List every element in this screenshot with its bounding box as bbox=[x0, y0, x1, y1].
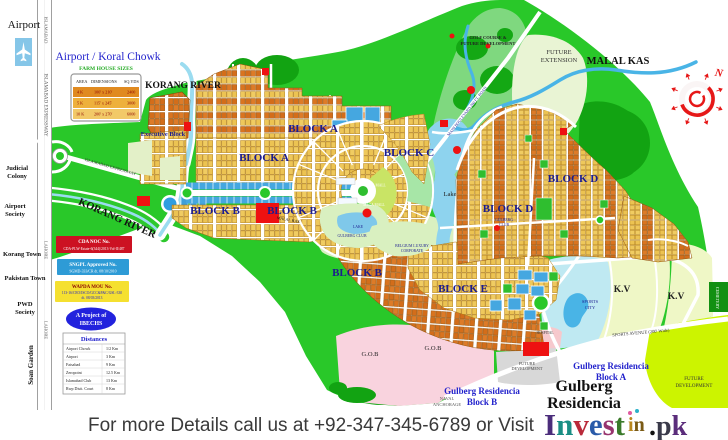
svg-text:Judicial: Judicial bbox=[6, 165, 28, 172]
svg-text:IBECHS: IBECHS bbox=[80, 321, 103, 327]
svg-text:SNGPL Approved No.: SNGPL Approved No. bbox=[69, 263, 117, 268]
svg-text:GOLF COURSE &: GOLF COURSE & bbox=[469, 35, 507, 40]
svg-text:CDA NOC No.: CDA NOC No. bbox=[78, 240, 110, 245]
svg-text:FUTURE: FUTURE bbox=[546, 49, 571, 56]
svg-text:BLOCK B: BLOCK B bbox=[267, 205, 317, 217]
svg-text:Gulberg Residencia: Gulberg Residencia bbox=[444, 386, 520, 396]
svg-text:K.V: K.V bbox=[668, 292, 685, 302]
svg-text:113-16/CEO/ISCO/GCC&P&C/GSL-33: 113-16/CEO/ISCO/GCC&P&C/GSL-330 bbox=[62, 291, 122, 295]
svg-text:Zeropoint: Zeropoint bbox=[66, 370, 83, 375]
svg-text:9 Km: 9 Km bbox=[106, 362, 116, 367]
svg-text:G.O.B: G.O.B bbox=[425, 345, 443, 352]
svg-text:Airport: Airport bbox=[66, 354, 79, 359]
svg-text:.pk: .pk bbox=[649, 411, 688, 440]
svg-text:BLOCK B: BLOCK B bbox=[332, 267, 382, 279]
svg-text:BLOCK D: BLOCK D bbox=[548, 173, 598, 185]
svg-text:LAHORE: LAHORE bbox=[44, 321, 49, 339]
svg-text:MEGA MALL: MEGA MALL bbox=[363, 203, 384, 207]
svg-text:10 K: 10 K bbox=[76, 112, 84, 117]
svg-text:FUTURE DEVELOPMENT: FUTURE DEVELOPMENT bbox=[461, 41, 516, 46]
svg-text:G.O.B: G.O.B bbox=[362, 351, 380, 358]
svg-text:FUTURE: FUTURE bbox=[684, 377, 703, 382]
svg-text:NAVAL: NAVAL bbox=[440, 396, 455, 401]
svg-text:in: in bbox=[628, 414, 645, 436]
svg-text:Invest: Invest bbox=[544, 407, 626, 440]
svg-text:Soan Garden: Soan Garden bbox=[27, 345, 35, 385]
svg-text:Block B: Block B bbox=[467, 397, 497, 407]
svg-text:CITY: CITY bbox=[585, 305, 596, 310]
svg-text:200' x 270': 200' x 270' bbox=[94, 112, 113, 117]
svg-text:BLOCK A: BLOCK A bbox=[239, 152, 289, 164]
svg-text:PWD: PWD bbox=[17, 301, 32, 308]
svg-text:Airport Chowk: Airport Chowk bbox=[66, 346, 90, 351]
svg-text:ANCHORAGE: ANCHORAGE bbox=[433, 402, 462, 407]
svg-text:Lake: Lake bbox=[444, 191, 457, 198]
svg-text:Rwp Distt. Court: Rwp Distt. Court bbox=[66, 386, 94, 391]
svg-text:8 Km: 8 Km bbox=[106, 386, 116, 391]
svg-text:ISLAMABAD EXPRESSWAY: ISLAMABAD EXPRESSWAY bbox=[43, 73, 48, 137]
svg-text:CLUB: CLUB bbox=[499, 223, 510, 227]
svg-text:BLOCK B: BLOCK B bbox=[190, 205, 240, 217]
svg-text:FARM HOUSE SIZES: FARM HOUSE SIZES bbox=[79, 66, 133, 72]
svg-text:K.V: K.V bbox=[614, 285, 631, 295]
svg-text:6000: 6000 bbox=[127, 112, 135, 117]
svg-text:CEMETERY: CEMETERY bbox=[715, 287, 720, 309]
svg-text:ISLAMABAD: ISLAMABAD bbox=[44, 17, 49, 45]
svg-text:KORANG RIVER: KORANG RIVER bbox=[145, 81, 221, 91]
svg-text:Korang Town: Korang Town bbox=[3, 251, 41, 258]
svg-text:BLOCK E: BLOCK E bbox=[438, 283, 488, 295]
svg-text:LAHORE: LAHORE bbox=[44, 241, 49, 259]
svg-text:BELGIUM LUXURY: BELGIUM LUXURY bbox=[395, 244, 429, 248]
svg-text:CDA-PLW-Estate-6(344)/2013-Vol: CDA-PLW-Estate-6(344)/2013-Vol-II/487 bbox=[64, 247, 125, 251]
svg-text:4 K: 4 K bbox=[77, 90, 83, 95]
svg-text:1/2 Km: 1/2 Km bbox=[106, 346, 119, 351]
svg-text:AREA: AREA bbox=[76, 79, 87, 84]
svg-text:Executive Block: Executive Block bbox=[141, 131, 186, 138]
svg-text:3000: 3000 bbox=[127, 101, 135, 106]
svg-text:CORPORATE: CORPORATE bbox=[401, 249, 424, 253]
svg-text:DEVELOPMENT: DEVELOPMENT bbox=[512, 366, 543, 371]
svg-text:Airport / Koral Chowk: Airport / Koral Chowk bbox=[55, 51, 160, 63]
svg-text:MEGA MALL: MEGA MALL bbox=[364, 184, 385, 188]
svg-text:SPORTS: SPORTS bbox=[582, 299, 599, 304]
svg-text:Airport: Airport bbox=[4, 203, 26, 210]
svg-text:DIMENSIONS: DIMENSIONS bbox=[91, 79, 117, 84]
svg-text:EXTENSION: EXTENSION bbox=[541, 57, 578, 64]
svg-text:Faisabad: Faisabad bbox=[66, 362, 80, 367]
svg-text:SQ.YDS: SQ.YDS bbox=[124, 79, 139, 84]
svg-text:12.5 Km: 12.5 Km bbox=[106, 370, 121, 375]
svg-text:WAPDA MOU No.: WAPDA MOU No. bbox=[72, 285, 113, 290]
svg-text:LAKE: LAKE bbox=[353, 225, 364, 229]
svg-text:13 Km: 13 Km bbox=[106, 378, 118, 383]
svg-text:Gulberg Residencia: Gulberg Residencia bbox=[573, 361, 649, 371]
svg-text:Pakistan Town: Pakistan Town bbox=[4, 275, 45, 282]
svg-text:GULBERG CLUB: GULBERG CLUB bbox=[337, 234, 366, 238]
svg-text:SGMD-333/CR dt. 08/10/2010: SGMD-333/CR dt. 08/10/2010 bbox=[69, 270, 116, 274]
svg-text:Islamabad Club: Islamabad Club bbox=[66, 378, 91, 383]
svg-text:Airport: Airport bbox=[8, 19, 40, 31]
svg-text:DEVELOPMENT: DEVELOPMENT bbox=[676, 384, 713, 389]
svg-text:HOSPITAL: HOSPITAL bbox=[536, 331, 553, 335]
svg-text:5 K: 5 K bbox=[77, 101, 83, 106]
svg-text:3 Km: 3 Km bbox=[106, 354, 116, 359]
svg-text:Gulberg: Gulberg bbox=[556, 378, 613, 395]
svg-text:115' x 245': 115' x 245' bbox=[94, 101, 112, 106]
svg-text:2400: 2400 bbox=[127, 90, 135, 95]
svg-text:GULBERG: GULBERG bbox=[495, 218, 513, 222]
svg-text:MALAL KAS: MALAL KAS bbox=[587, 56, 650, 67]
svg-text:A Project of: A Project of bbox=[76, 313, 108, 319]
svg-text:BLOCK C: BLOCK C bbox=[384, 147, 434, 159]
svg-text:BLOCK D: BLOCK D bbox=[483, 203, 533, 215]
svg-text:For more Details call us at +9: For more Details call us at +92-347-345-… bbox=[88, 415, 535, 436]
svg-text:Society: Society bbox=[15, 309, 36, 316]
svg-text:BLOCK A: BLOCK A bbox=[288, 123, 338, 135]
svg-text:100' x 210': 100' x 210' bbox=[94, 90, 113, 95]
svg-text:dt. 08/03/2013: dt. 08/03/2013 bbox=[82, 296, 103, 300]
svg-text:Distances: Distances bbox=[81, 336, 108, 343]
svg-text:Colony: Colony bbox=[7, 173, 28, 180]
svg-text:Society: Society bbox=[5, 211, 26, 218]
